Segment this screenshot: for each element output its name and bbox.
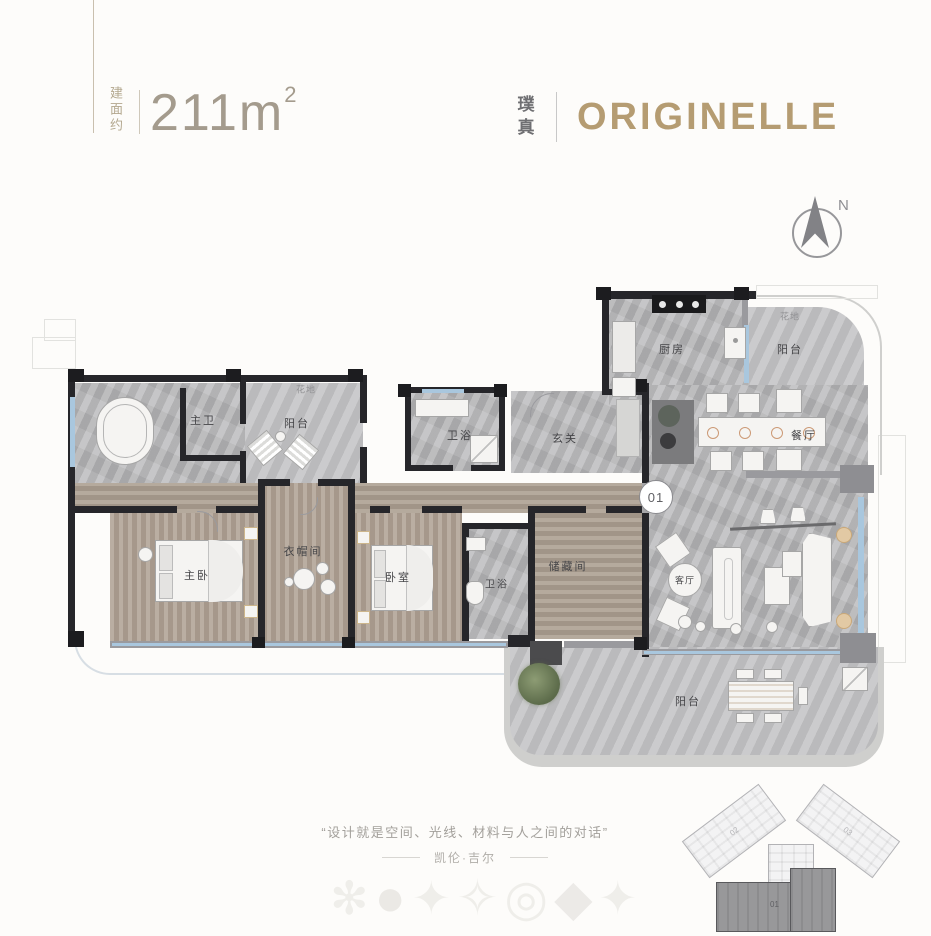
pouf <box>293 568 315 590</box>
dining-chair <box>742 451 764 471</box>
sideboard <box>652 400 694 464</box>
column <box>348 369 363 382</box>
quote-attribution: 凯伦·吉尔 <box>235 849 695 866</box>
keyplan-unit-02-label: 02 <box>728 825 741 838</box>
deco-circle <box>730 623 742 635</box>
window-strip <box>858 497 864 633</box>
star-watermark-icon: ✦ <box>599 875 638 921</box>
column <box>840 465 874 493</box>
wall-segment <box>405 465 453 471</box>
window-wall <box>564 641 644 648</box>
attribution-dash <box>510 857 548 858</box>
outdoor-chair <box>764 713 782 723</box>
column <box>398 384 411 397</box>
room-label-dining: 餐厅 <box>791 427 817 443</box>
decorative-line <box>93 0 94 133</box>
column <box>342 637 355 648</box>
area-divider <box>139 90 140 134</box>
column <box>530 641 562 665</box>
room-label-closet: 衣帽间 <box>284 543 323 559</box>
wall-segment <box>240 382 246 424</box>
dining-chair <box>738 393 760 413</box>
floor-storage <box>528 513 642 639</box>
outdoor-table <box>728 681 794 711</box>
column <box>68 631 84 647</box>
context-outline <box>32 337 76 369</box>
kitchen-sink <box>724 327 746 359</box>
pouf <box>320 579 336 595</box>
poster: 建面约 211m2 璞真 ORIGINELLE N <box>0 0 931 936</box>
window-strip <box>70 397 75 467</box>
wall-segment <box>471 465 505 471</box>
room-label-bedroom: 卧室 <box>385 569 411 585</box>
round-table <box>138 547 153 562</box>
nightstand <box>357 611 370 624</box>
brand-logo: ORIGINELLE <box>577 98 839 136</box>
watermark-row: ✻ ● ✦ ✧ ◎ ◆ ✦ <box>330 872 637 924</box>
wall-segment <box>348 479 355 641</box>
wall-segment <box>68 375 364 382</box>
wall-segment <box>370 506 390 513</box>
context-outline <box>44 319 76 341</box>
kitchen-counter <box>612 321 636 373</box>
area-value: 211m2 <box>150 84 296 139</box>
deco-circle <box>695 621 706 632</box>
wall-segment <box>462 523 528 529</box>
room-label-bath-2: 卫浴 <box>485 576 509 591</box>
star-watermark-icon: ✦ <box>412 875 451 921</box>
star-outline-watermark-icon: ✧ <box>457 873 499 923</box>
dining-chair <box>776 389 802 413</box>
wall-segment <box>318 479 350 486</box>
keyplan-unit-01-shape <box>790 868 836 932</box>
nightstand <box>244 605 258 618</box>
quote-text: “设计就是空间、光线、材料与人之间的对话” <box>235 822 695 841</box>
attribution-dash <box>382 857 420 858</box>
room-label-storage: 储藏间 <box>549 558 588 574</box>
brand-chinese: 璞真 <box>516 94 536 140</box>
keyplan-unit-03-label: 03 <box>842 825 855 838</box>
key-plan: 02 03 01 <box>672 786 910 936</box>
deco-circle <box>766 621 778 633</box>
outdoor-chair <box>736 713 754 723</box>
compass-north-label: N <box>838 197 849 214</box>
dining-chair <box>706 393 728 413</box>
wall-segment <box>508 635 530 647</box>
area-superscript: 2 <box>284 82 296 107</box>
attribution-name: 凯伦·吉尔 <box>434 849 496 866</box>
column <box>840 633 876 663</box>
label-flower-bed-top: 花地 <box>780 310 800 323</box>
circle-watermark-icon: ● <box>375 872 406 924</box>
plant-tree <box>518 663 560 705</box>
window-strip <box>422 389 464 393</box>
room-label-master-bedroom: 主卧 <box>184 567 210 583</box>
outdoor-chair <box>736 669 754 679</box>
room-label-bath-1: 卫浴 <box>447 427 473 443</box>
wall-segment <box>240 451 246 483</box>
floor-lamp <box>836 527 852 543</box>
wall-segment <box>180 388 186 460</box>
wall-segment <box>528 506 586 513</box>
ring-watermark-icon: ◎ <box>504 873 548 923</box>
wall-segment <box>602 291 609 395</box>
wall-segment <box>258 479 265 641</box>
wall-segment <box>642 513 649 657</box>
deco-circle <box>678 615 692 629</box>
dining-chair <box>776 449 802 471</box>
sofa <box>712 547 742 629</box>
wall-segment <box>360 447 367 483</box>
kitchen-cabinet <box>612 377 636 397</box>
column <box>68 369 84 382</box>
window-strip <box>644 651 840 654</box>
window-strip <box>112 643 506 646</box>
diamond-watermark-icon: ◆ <box>554 873 592 923</box>
double-sink <box>415 399 469 417</box>
pouf <box>316 562 329 575</box>
wall-segment <box>360 375 367 423</box>
sink <box>466 537 486 551</box>
stove-icon <box>652 295 706 313</box>
room-label-master-bath: 主卫 <box>190 412 216 428</box>
bathtub <box>96 397 154 465</box>
column <box>494 384 507 397</box>
nightstand <box>357 531 370 544</box>
label-flower-bed-left: 花地 <box>296 383 316 396</box>
shower <box>470 435 498 463</box>
side-table <box>782 551 802 577</box>
outdoor-chair <box>798 687 808 705</box>
context-outline <box>878 435 906 663</box>
planter-outline <box>756 285 878 299</box>
dining-chair <box>710 451 732 471</box>
wall-segment <box>422 506 462 513</box>
foyer-cabinet <box>616 399 640 457</box>
wall-segment <box>606 506 642 513</box>
toilet <box>466 581 484 605</box>
outdoor-chair <box>764 669 782 679</box>
column <box>634 637 647 650</box>
room-label-balcony-left: 阳台 <box>284 415 310 431</box>
keyplan-unit-01-label: 01 <box>770 900 779 909</box>
area-prefix: 建面约 <box>106 86 125 138</box>
wall-segment <box>528 506 535 641</box>
unit-badge: 01 <box>639 480 673 514</box>
column <box>596 287 611 300</box>
column <box>252 637 265 648</box>
floor-lamp <box>836 613 852 629</box>
room-label-balcony-top: 阳台 <box>777 341 803 357</box>
area-number: 211m <box>150 84 284 142</box>
room-label-balcony-bottom: 阳台 <box>675 693 701 709</box>
chaise-lounge <box>802 533 832 627</box>
wall-segment <box>642 383 649 483</box>
pouf <box>284 577 294 587</box>
flower-watermark-icon: ✻ <box>330 875 369 921</box>
brand-divider <box>556 92 557 142</box>
wall-segment <box>216 506 260 513</box>
column <box>734 287 749 300</box>
column <box>226 369 241 382</box>
wall-segment <box>499 387 505 471</box>
wall-segment <box>405 387 411 471</box>
wall-segment <box>180 455 242 461</box>
side-table <box>275 431 286 442</box>
ac-unit <box>842 667 868 691</box>
room-label-kitchen: 厨房 <box>659 341 685 357</box>
nightstand <box>244 527 258 540</box>
wall-segment <box>75 506 177 513</box>
floor-plan: 主卫 阳台 花地 卫浴 玄关 厨房 阳台 花地 餐厅 主卧 衣帽间 卧室 卫浴 … <box>30 285 905 775</box>
room-label-living: 客厅 <box>675 574 695 587</box>
glass-wall <box>746 471 846 478</box>
room-label-foyer: 玄关 <box>552 430 578 446</box>
